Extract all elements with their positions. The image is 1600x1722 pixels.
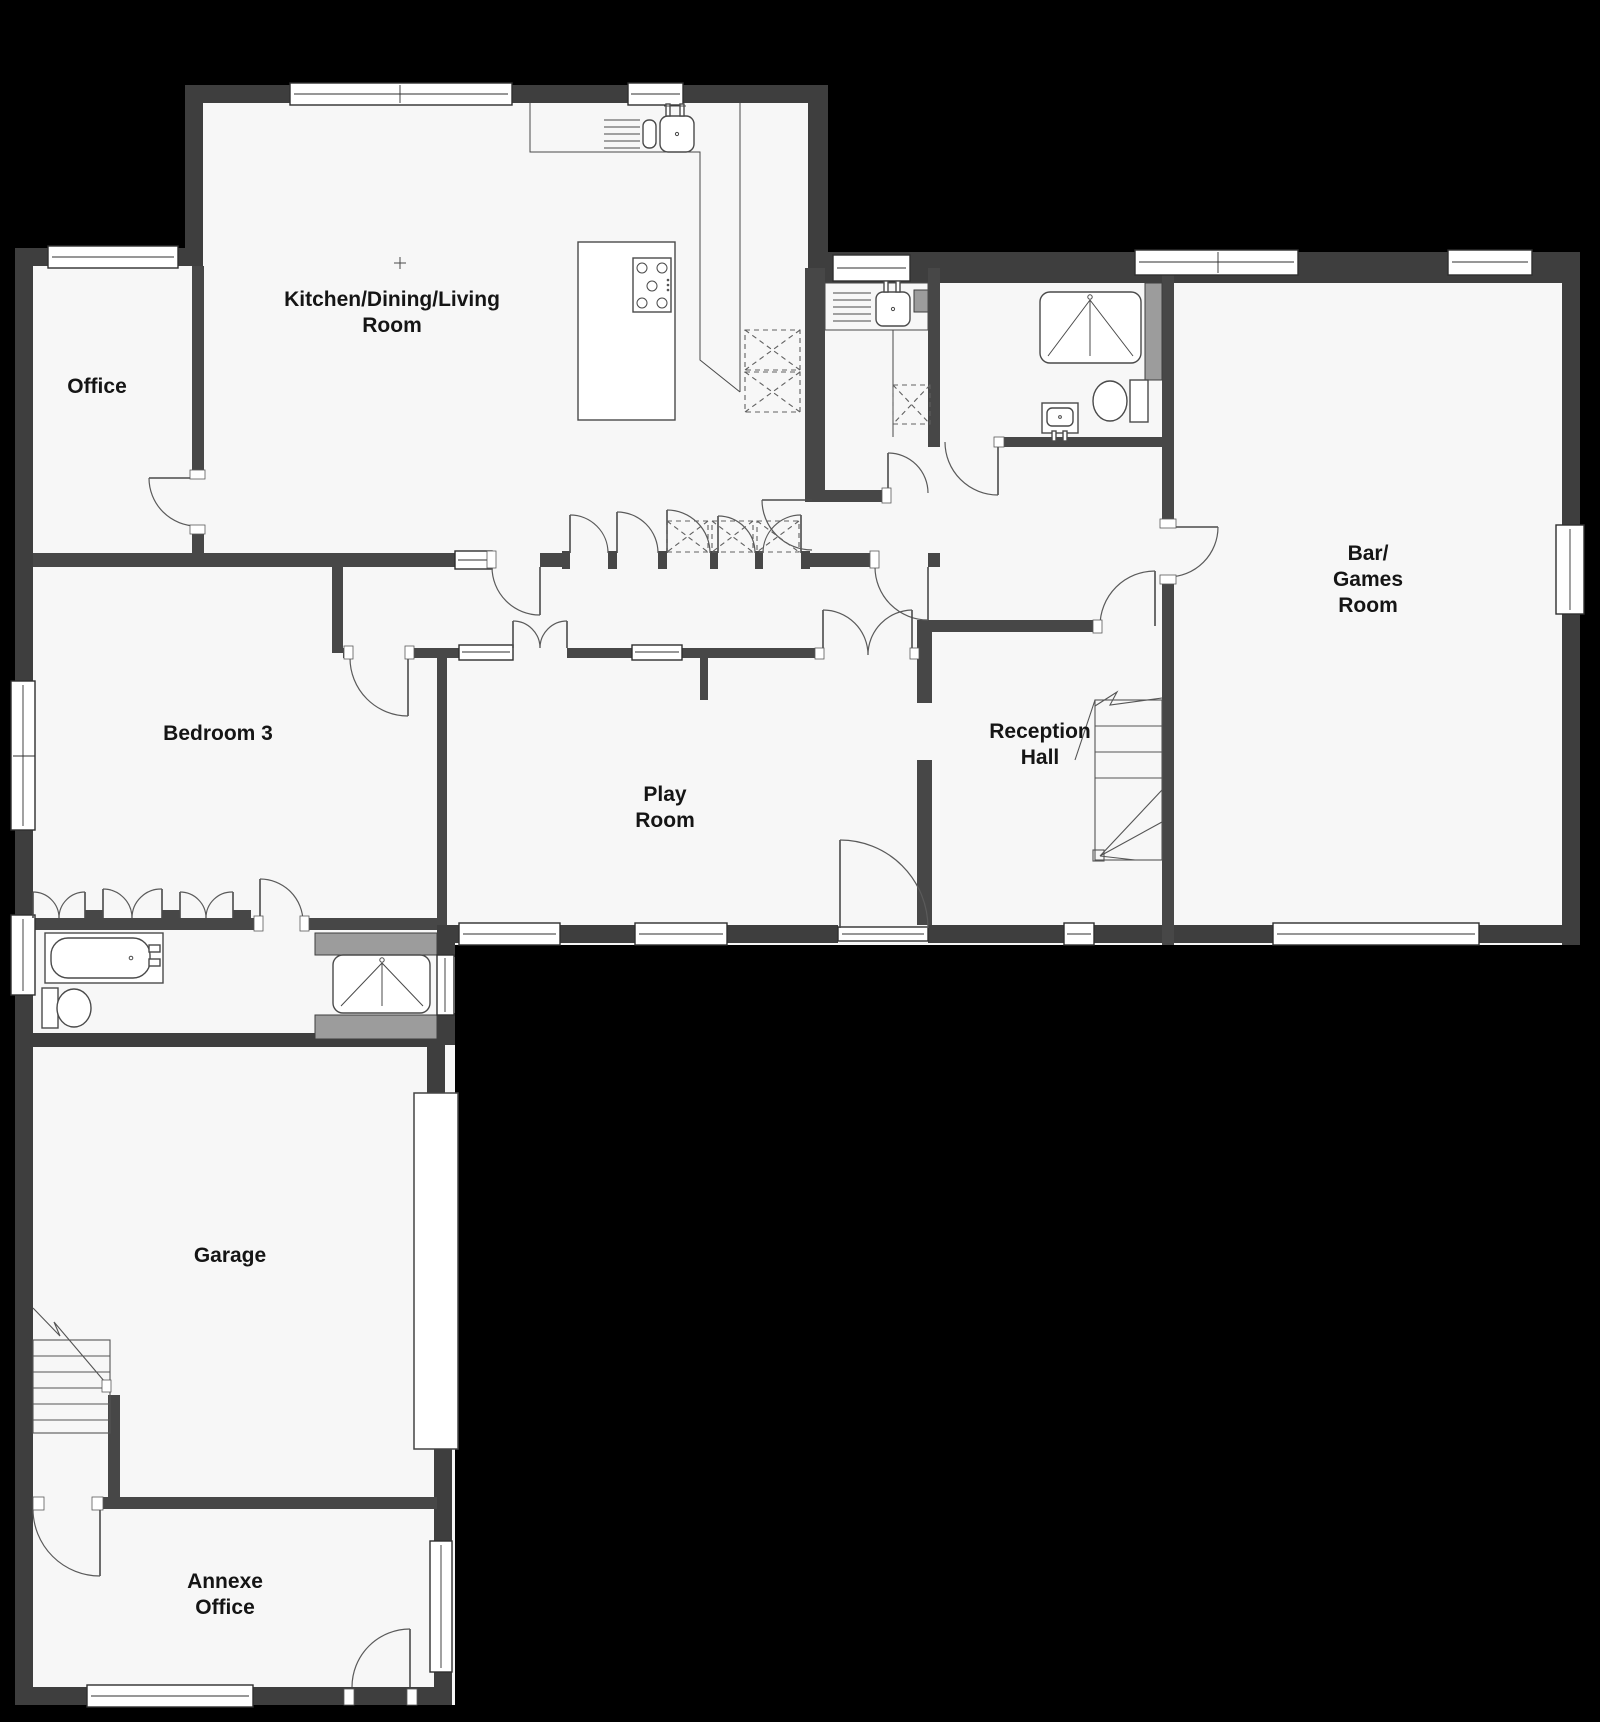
room-label-playroom-2: Room [635,809,695,832]
window-hall-front [1064,923,1094,945]
window-kitchen-top [290,83,512,105]
kitchen-island [578,242,675,420]
window-bar-top-1 [1135,250,1298,275]
window-annexe-bottom [87,1685,253,1707]
island-hob [633,258,671,312]
window-kitchen-sink [628,83,683,105]
window-bathroom-left [11,915,35,995]
garage-door [414,1093,458,1449]
room-label-bar-3: Room [1338,594,1398,617]
floorplan-svg: Kitchen/Dining/Living Room Office Bedroo… [0,0,1600,1722]
window-internal-play-1 [459,645,513,660]
room-label-kitchen-2: Room [362,314,422,337]
window-bedroom3-left [11,681,35,830]
toilet-ensuite [1093,380,1148,422]
room-label-annexe-2: Office [195,1596,255,1619]
room-label-reception-2: Hall [1021,746,1060,769]
shower-tray-ensuite [1040,292,1141,363]
shower-tray-bathroom [333,955,430,1013]
window-bar-front [1273,923,1479,945]
window-shower-right [437,955,454,1015]
window-bar-right [1556,525,1584,614]
window-annexe-right [430,1541,452,1672]
window-play-front-1 [459,923,560,945]
room-label-kitchen: Kitchen/Dining/Living [284,288,500,311]
front-door-threshold [838,927,928,941]
toilet-bathroom [42,988,91,1028]
room-label-annexe: Annexe [187,1570,263,1593]
room-label-bedroom3: Bedroom 3 [163,722,273,745]
bathtub [45,933,163,983]
window-office-top [48,246,178,268]
window-bar-top-2 [1448,250,1532,275]
floorplan-canvas: Kitchen/Dining/Living Room Office Bedroo… [0,0,1600,1722]
window-internal-play-2 [632,645,682,660]
room-label-bar: Bar/ [1348,542,1389,565]
room-label-garage: Garage [194,1244,266,1267]
window-utility-top [833,255,910,281]
room-label-playroom: Play [643,783,687,806]
room-label-reception: Reception [989,720,1091,743]
window-internal-corridor [455,551,492,569]
room-label-bar-2: Games [1333,568,1403,591]
room-label-office: Office [67,375,127,398]
window-play-front-2 [635,923,727,945]
floor-areas [15,85,1580,1705]
